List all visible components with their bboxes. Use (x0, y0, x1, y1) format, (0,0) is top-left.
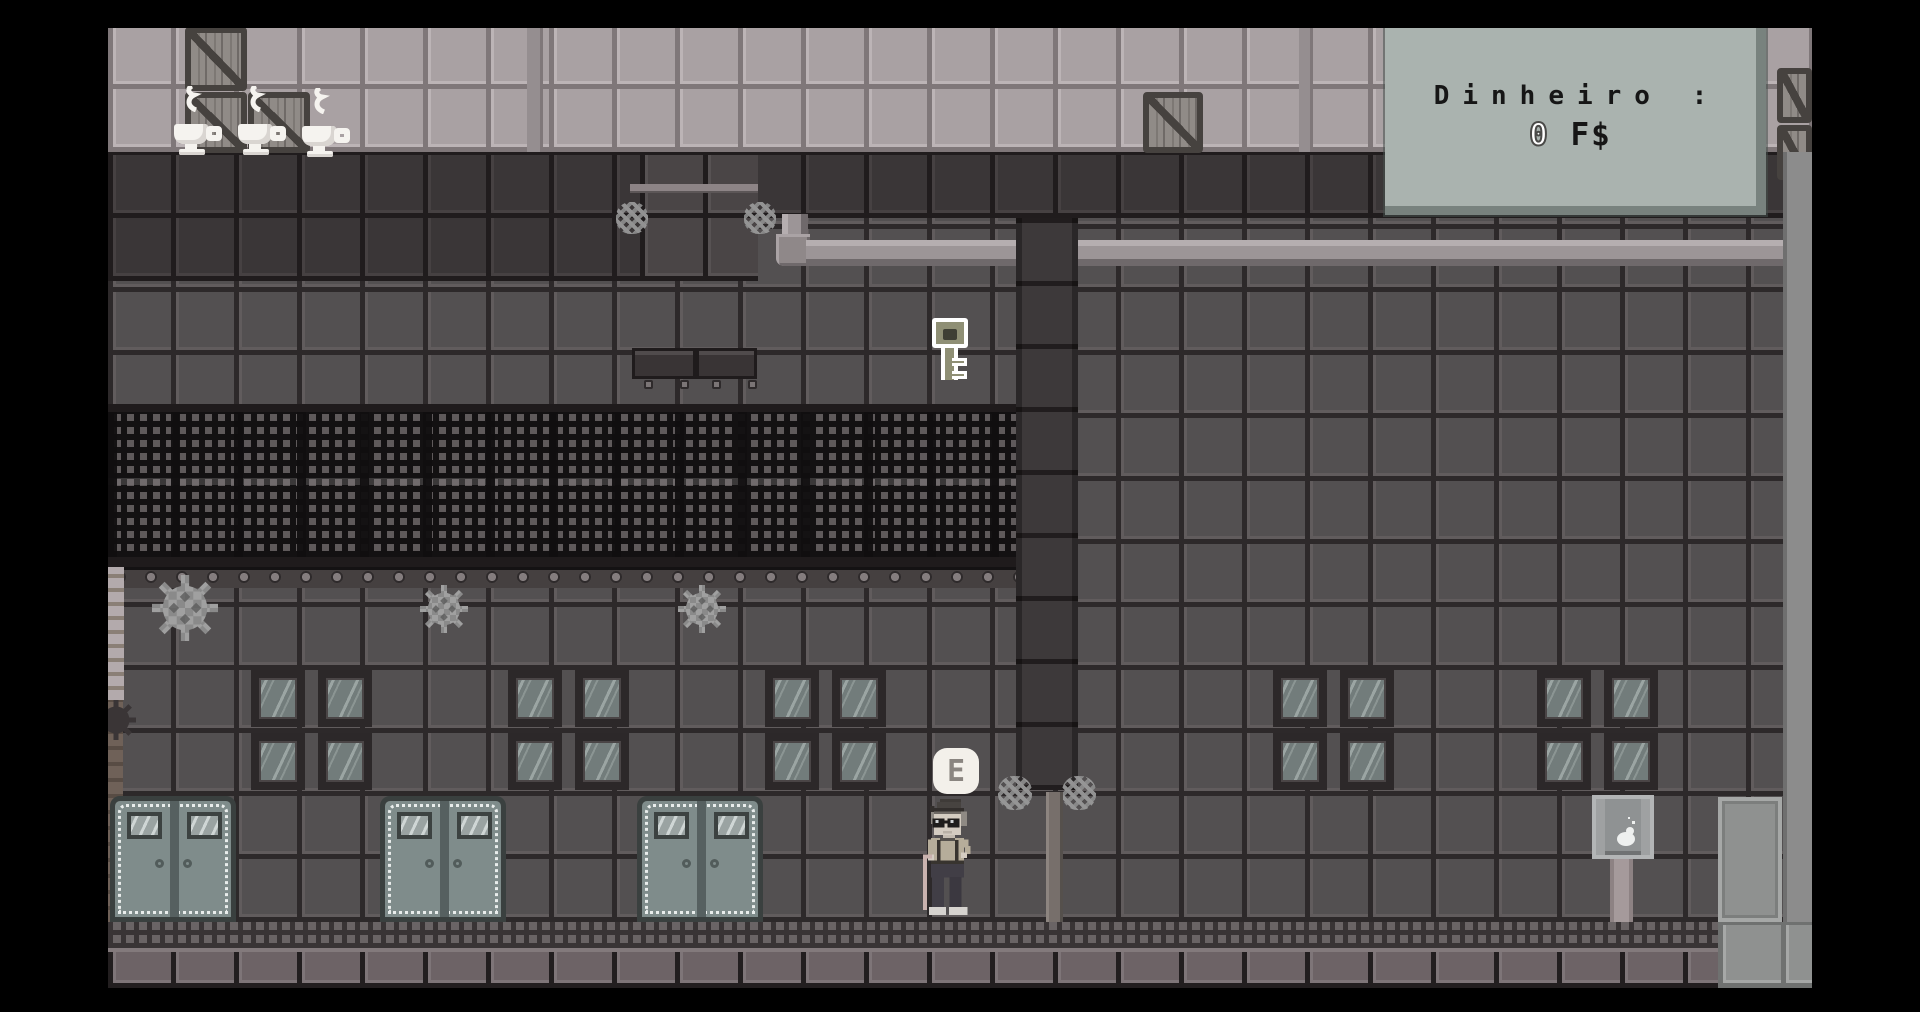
door-knob (453, 859, 462, 868)
door-post (440, 801, 449, 917)
window (1604, 733, 1658, 790)
handrail (630, 184, 758, 191)
double-door (380, 796, 506, 922)
cup-handle (206, 126, 222, 141)
window (765, 670, 819, 727)
window-cluster (251, 670, 372, 790)
elevator-panel (1718, 797, 1782, 922)
letterbox: E Dinheiro : 0 F$ (0, 0, 1920, 1012)
door-knob (425, 859, 434, 868)
steam-icon (180, 86, 202, 112)
bolt-icon (712, 380, 721, 389)
pipe-elbow (776, 234, 810, 266)
door-knob (183, 859, 192, 868)
sign-post (1592, 795, 1654, 859)
key-tooth (952, 371, 967, 379)
money-currency: F$ (1571, 117, 1612, 153)
gear-icon (678, 585, 726, 633)
money-panel: Dinheiro : 0 F$ (1385, 28, 1766, 215)
cup-saucer (179, 149, 205, 155)
sign-icon (1612, 811, 1642, 849)
cup-handle (334, 128, 350, 143)
key-hole (943, 329, 957, 340)
window (1340, 670, 1394, 727)
window (1273, 733, 1327, 790)
window (1273, 670, 1327, 727)
wall-dark-block (108, 218, 648, 281)
double-door (110, 796, 236, 922)
door-window (714, 812, 749, 839)
window (1537, 670, 1591, 727)
conveyor-mesh-band (108, 412, 1016, 557)
right-wall-shaft (1783, 152, 1812, 988)
rivet-strip (108, 567, 1016, 588)
window (575, 670, 629, 727)
floor-light (1718, 922, 1812, 988)
smoke-puff-icon (998, 776, 1032, 810)
window-cluster (1273, 670, 1394, 790)
door-knob (682, 859, 691, 868)
window (318, 670, 372, 727)
door-window (187, 812, 222, 839)
key-bow (932, 318, 968, 348)
window-cluster (1537, 670, 1658, 790)
money-amount: 0 F$ (1529, 117, 1612, 153)
coffee-cup (172, 110, 226, 156)
door-post (170, 801, 179, 917)
crate (1777, 68, 1812, 123)
mesh-band-bottom-edge (108, 557, 1016, 567)
window (1340, 733, 1394, 790)
pipe (806, 240, 1812, 266)
window (1537, 733, 1591, 790)
left-edge-trim (108, 567, 124, 700)
door-post (697, 801, 706, 917)
window (832, 733, 886, 790)
npc-old-man (916, 799, 982, 922)
bolt-icon (644, 380, 653, 389)
mesh-band-top-edge (108, 404, 1016, 412)
window-cluster (508, 670, 629, 790)
gear-icon (152, 575, 218, 641)
smoke-puff-icon (744, 202, 776, 234)
coffee-cup (300, 112, 354, 158)
cup-body (302, 126, 336, 146)
gear-icon (108, 700, 136, 740)
door-window (397, 812, 432, 839)
floor (108, 948, 1718, 988)
cup-saucer (307, 151, 333, 157)
game-viewport[interactable]: E Dinheiro : 0 F$ (108, 28, 1812, 988)
cup-saucer (243, 149, 269, 155)
steam-icon (308, 88, 330, 114)
window (1604, 670, 1658, 727)
smoke-puff-icon (616, 202, 648, 234)
smoke-puff-icon (1062, 776, 1096, 810)
key-icon (932, 318, 972, 382)
wall-column (1016, 218, 1078, 790)
band-pillar (527, 28, 543, 152)
door-window (654, 812, 689, 839)
door-window (127, 812, 162, 839)
wall-alcove (640, 152, 758, 281)
window (508, 733, 562, 790)
window-cluster (765, 670, 886, 790)
wall-panel (632, 348, 696, 379)
money-label: Dinheiro : (1434, 81, 1721, 111)
money-value: 0 (1529, 117, 1550, 153)
gear-icon (420, 585, 468, 633)
sign-pole (1610, 859, 1633, 922)
window (508, 670, 562, 727)
crate (185, 28, 247, 91)
window (832, 670, 886, 727)
door-window (457, 812, 492, 839)
band-pillar (1299, 28, 1313, 152)
door-knob (155, 859, 164, 868)
cup-handle (270, 126, 286, 141)
sidewalk (108, 922, 1718, 948)
window (765, 733, 819, 790)
window (575, 733, 629, 790)
interact-key-label: E (947, 754, 965, 789)
key-tooth (952, 358, 967, 366)
cup-body (238, 124, 272, 144)
cup-body (174, 124, 208, 144)
coffee-cup (236, 110, 290, 156)
window (251, 670, 305, 727)
lamp-post (1046, 792, 1063, 922)
bolt-icon (680, 380, 689, 389)
door-knob (710, 859, 719, 868)
window (318, 733, 372, 790)
double-door (637, 796, 763, 922)
steam-icon (244, 86, 266, 112)
window (251, 733, 305, 790)
interact-bubble: E (933, 748, 979, 794)
bolt-icon (748, 380, 757, 389)
wall-panel (696, 348, 757, 379)
crate (1143, 92, 1203, 153)
